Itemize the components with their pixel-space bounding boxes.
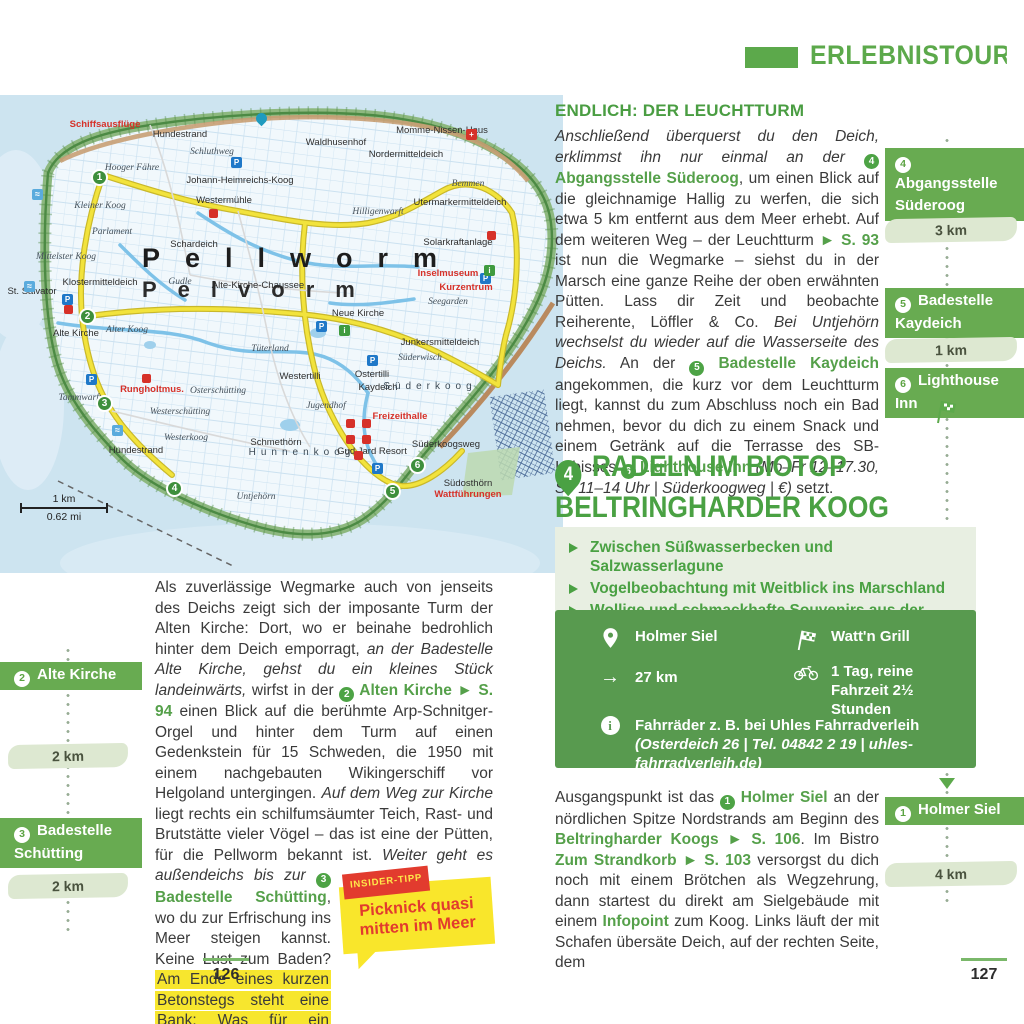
map-label: Wattführungen (434, 490, 501, 500)
map-label: Hooger Fähre (105, 164, 159, 174)
station-label: Holmer Siel (918, 801, 1001, 818)
tour-info-note: i Fahrräder z. B. bei Uhles Fahrradverle… (597, 716, 942, 773)
tour-facts-box: Holmer Siel Watt'n Grill → 27 km (555, 610, 976, 768)
map-label: Jugendhof (306, 402, 346, 412)
red-map-icon (487, 231, 496, 240)
map-scale-km: 1 km (16, 493, 112, 505)
map-label: Johann-Heimreichs-Koog (186, 176, 293, 186)
map-label: Hilligenwarft (352, 208, 403, 218)
tour-start: Holmer Siel (597, 627, 757, 649)
map-label: Südosthörn (444, 479, 493, 489)
map-island-name: Pellworm (142, 243, 462, 274)
header-title: ERLEBNISTOUREN I (810, 40, 1007, 71)
map-label: Neue Kirche (332, 309, 384, 319)
arrow-right-icon: → (597, 668, 623, 686)
parking-map-icon: P (86, 374, 97, 385)
info-circle-icon: i (597, 716, 623, 735)
map-label: Westerschütting (150, 408, 210, 418)
left-distance-wash: 2 km (8, 873, 128, 899)
map-label: Klostermitteldeich (63, 278, 138, 288)
map-island-name-frisian: Pelvorm (142, 277, 376, 303)
arrow-bullet-icon (569, 584, 578, 594)
map-label: Süderwisch (398, 354, 442, 364)
map-label: Alte Kirche (53, 329, 99, 339)
tour-title-line1: RADELN IM BIOTOP (592, 450, 847, 483)
page-number-right: 127 (944, 958, 1024, 984)
swim-map-icon: ≈ (32, 189, 43, 200)
parking-map-icon: P (367, 355, 378, 366)
right-route-dotted-line (945, 772, 949, 908)
distance-label: 4 km (935, 866, 967, 883)
map-label: Gud Jard Resort (337, 447, 407, 457)
distance-label: 2 km (52, 878, 84, 895)
tour-duration: 1 Tag, reine Fahrzeit 2½ Stunden (793, 662, 963, 719)
red-map-icon (209, 209, 218, 218)
tour-pin-icon: 4 (550, 454, 587, 496)
map-label: Alter Koog (106, 326, 148, 336)
map-route-marker: 3 (96, 395, 113, 412)
map-label: Tüterland (251, 345, 288, 355)
map-label: Ostertilli (355, 370, 389, 380)
map-label: Hundestrand (153, 130, 207, 140)
right-sidebar-station-abgangsstelle-suederoog: 4Abgangsstelle Süderoog (885, 148, 1024, 221)
station-number-badge: 1 (895, 806, 911, 822)
map-route-marker: 5 (384, 483, 401, 500)
checkered-flag-icon (793, 627, 819, 651)
map-label: Untjehörn (236, 493, 275, 503)
location-pin-icon (597, 627, 623, 649)
station-number-badge: 6 (895, 377, 911, 393)
left-distance-wash: 2 km (8, 743, 128, 769)
map-label: Waldhusenhof (306, 138, 366, 148)
red-map-icon (354, 451, 363, 460)
map-label: Kleiner Koog (74, 202, 125, 212)
map-pellworm: SchiffsausflügeHundestrandHooger FähreSc… (0, 95, 563, 573)
tour-highlight-item: Vogelbeobachtung mit Weitblick ins Marsc… (569, 579, 962, 598)
right-distance-wash: 3 km (885, 217, 1017, 243)
cross-map-icon: + (466, 129, 477, 140)
tour-section-title: 4RADELN IM BIOTOP BELTRINGHARDER KOOG (555, 449, 942, 526)
page-number-left: 126 (186, 958, 266, 984)
map-label: Süderkoog (383, 382, 476, 393)
map-label: Westerkoog (164, 434, 208, 444)
right-distance-wash: 4 km (885, 861, 1017, 887)
pin-map-icon (254, 111, 270, 127)
map-label: Schluthweg (190, 148, 234, 158)
map-label: Parlament (92, 228, 132, 238)
parking-map-icon: P (62, 294, 73, 305)
right-distance-wash: 1 km (885, 337, 1017, 363)
red-map-icon (346, 435, 355, 444)
left-sidebar-station-alte-kirche: 2Alte Kirche (0, 662, 142, 690)
map-scale: 1 km 0.62 mi (16, 493, 112, 523)
station-label: Abgangsstelle Süderoog (895, 175, 998, 215)
right-page-paragraph-1: Anschließend überquerst du den Deich, er… (555, 127, 879, 500)
map-label: Nordermitteldeich (369, 150, 443, 160)
map-label: Junkersmitteldeich (401, 338, 480, 348)
guidebook-spread: ERLEBNISTOUREN I 3 (0, 0, 1024, 1024)
map-label: Süderkoogsweg (412, 440, 480, 450)
distance-label: 3 km (935, 222, 967, 239)
tour-finish: Watt'n Grill (793, 627, 963, 651)
red-map-icon (142, 374, 151, 383)
insider-tip: INSIDER-TIPPPicknick quasi mitten im Mee… (341, 868, 493, 1018)
map-label: Seegarden (428, 298, 468, 308)
page-number-rule (961, 958, 1007, 961)
parking-map-icon: P (372, 463, 383, 474)
map-label: Schiffsausflüge (70, 120, 141, 130)
red-map-icon (346, 419, 355, 428)
left-sidebar-station-badestelle-schuetting: 3Badestelle Schütting (0, 818, 142, 868)
tour-distance: → 27 km (597, 668, 757, 687)
station-number-badge: 3 (14, 827, 30, 843)
parking-map-icon: P (316, 321, 327, 332)
right-page-paragraph-2: Ausgangspunkt ist das 1 Holmer Siel an d… (555, 788, 879, 974)
right-sidebar-station-badestelle-kaydeich: 5Badestelle Kaydeich (885, 288, 1024, 338)
map-scale-mi: 0.62 mi (16, 511, 112, 523)
arrow-bullet-icon (569, 543, 578, 553)
red-map-icon (362, 435, 371, 444)
map-label: Kurzentrum (439, 283, 492, 293)
map-label: Osterschütting (190, 387, 246, 397)
map-label: Rungholtmus. (120, 385, 184, 395)
map-route-marker: 1 (91, 169, 108, 186)
info-map-icon: i (339, 325, 350, 336)
parking-map-icon: P (231, 157, 242, 168)
map-label: Freizeithalle (373, 412, 428, 422)
map-route-marker: 6 (409, 457, 426, 474)
header-accent-bar (745, 47, 798, 68)
right-section-heading: ENDLICH: DER LEUCHTTURM (555, 101, 804, 121)
right-sidebar-station-holmer-siel: 1Holmer Siel (885, 797, 1024, 825)
map-label: Westermühle (196, 196, 252, 206)
map-label: Bemmen (452, 180, 485, 190)
map-label: Mittelster Koog (36, 253, 96, 263)
map-label: Hundestrand (109, 446, 163, 456)
station-number-badge: 4 (895, 157, 911, 173)
station-number-badge: 5 (895, 297, 911, 313)
station-number-badge: 2 (14, 671, 30, 687)
station-label: Alte Kirche (37, 666, 116, 683)
map-scale-bar (20, 507, 108, 509)
route-continue-arrow-icon (939, 778, 955, 789)
swim-map-icon: ≈ (24, 281, 35, 292)
station-label: Badestelle Schütting (14, 822, 112, 862)
map-route-marker: 4 (166, 480, 183, 497)
bicycle-icon (793, 662, 819, 682)
red-map-icon (362, 419, 371, 428)
tour-title-line2: BELTRINGHARDER KOOG (555, 491, 889, 524)
swim-map-icon: ≈ (112, 425, 123, 436)
station-label: Badestelle Kaydeich (895, 292, 993, 332)
distance-label: 2 km (52, 748, 84, 765)
map-route-marker: 2 (79, 308, 96, 325)
page-number-rule (203, 958, 249, 961)
tour-highlight-item: Zwischen Süßwasserbecken und Salzwasserl… (569, 538, 962, 576)
red-map-icon (64, 305, 73, 314)
distance-label: 1 km (935, 342, 967, 359)
info-map-icon: i (484, 265, 495, 276)
map-label: Utermarkermitteldeich (414, 198, 507, 208)
finish-flag-icon (934, 398, 958, 429)
map-label: Westertilli (280, 372, 321, 382)
